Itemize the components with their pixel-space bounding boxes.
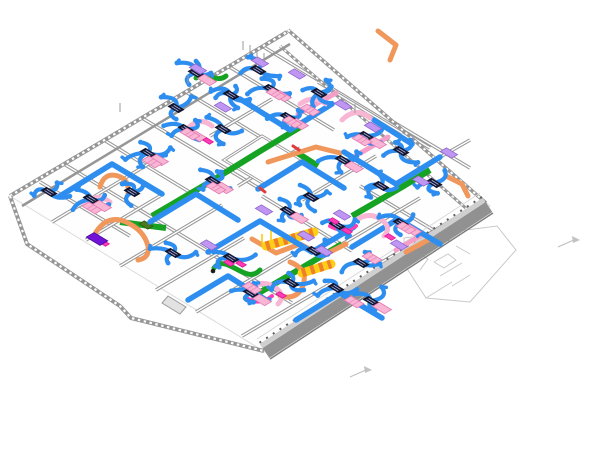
duct-elbow-stub: [199, 189, 204, 190]
duct-elbow-tip: [300, 88, 305, 93]
duct-elbow-stub: [234, 108, 238, 110]
duct-elbow-stub: [346, 235, 349, 238]
section-marker-icon: [572, 236, 580, 243]
duct-elbow-tip: [381, 153, 386, 158]
duct-elbow-tip: [408, 138, 413, 143]
duct-elbow-tip: [187, 82, 192, 87]
duct-elbow-tip: [253, 252, 258, 257]
duct-elbow-stub: [57, 183, 62, 184]
duct-elbow-tip: [194, 59, 199, 64]
duct-elbow-stub: [325, 240, 330, 241]
duct-elbow-stub: [414, 185, 417, 188]
duct-elbow-tip: [339, 270, 344, 275]
duct-elbow-stub: [357, 289, 358, 292]
duct-elbow-stub: [415, 162, 418, 165]
duct-elbow-stub: [379, 214, 380, 217]
duct-elbow-tip: [265, 116, 270, 121]
duct-elbow-tip: [163, 153, 168, 158]
duct-elbow-tip: [277, 197, 282, 202]
duct-elbow-stub: [268, 287, 271, 289]
duct-elbow-tip: [229, 289, 234, 294]
duct-elbow-stub: [213, 249, 214, 252]
duct-elbow-stub: [292, 252, 295, 255]
duct-elbow-stub: [282, 127, 287, 128]
duct-elbow-stub: [357, 152, 361, 154]
flex-duct-cluster[interactable]: [175, 59, 217, 87]
duct-elbow-stub: [168, 134, 172, 136]
duct-elbow-tip: [161, 123, 166, 128]
duct-elbow-stub: [366, 197, 371, 198]
duct-elbow-stub: [298, 110, 302, 111]
duct-elbow-stub: [295, 204, 300, 205]
duct-elbow-stub: [314, 294, 318, 296]
duct-elbow-tip: [102, 193, 107, 198]
duct-elbow-stub: [380, 264, 381, 267]
duct-elbow-stub: [336, 172, 341, 173]
duct-elbow-tip: [323, 279, 328, 284]
duct-elbow-tip: [233, 84, 238, 89]
duct-elbow-tip: [71, 207, 76, 212]
duct-elbow-tip: [312, 209, 317, 214]
duct-elbow-tip: [398, 232, 403, 237]
duct-elbow-tip: [298, 183, 303, 188]
duct-elbow-tip: [442, 168, 447, 173]
duct-elbow-tip: [138, 140, 143, 145]
isometric-3d-model-view[interactable]: [0, 0, 600, 471]
duct-elbow-stub: [211, 73, 212, 76]
duct-elbow-stub: [327, 191, 331, 193]
duct-elbow-stub: [215, 266, 220, 267]
duct-elbow-tip: [364, 185, 369, 190]
duct-elbow-tip: [320, 220, 325, 225]
duct-elbow-tip: [129, 203, 134, 208]
duct-elbow-stub: [279, 76, 280, 79]
duct-elbow-tip: [329, 84, 334, 89]
duct-elbow-stub: [122, 182, 125, 185]
duct-elbow-stub: [207, 115, 210, 118]
duct-elbow-stub: [262, 76, 266, 78]
duct-elbow-tip: [239, 129, 244, 134]
section-marker-icon: [364, 366, 372, 373]
duct-elbow-stub: [345, 134, 347, 137]
model-viewport[interactable]: [0, 0, 600, 471]
duct-elbow-stub: [161, 95, 164, 98]
duct-elbow-stub: [314, 281, 316, 284]
duct-elbow-tip: [301, 288, 306, 293]
round-device-dot: [211, 269, 216, 274]
duct-elbow-stub: [219, 144, 224, 145]
duct-elbow-stub: [170, 148, 173, 151]
duct-elbow-tip: [316, 159, 321, 164]
duct-elbow-tip: [174, 117, 179, 122]
duct-elbow-stub: [122, 157, 125, 159]
duct-elbow-stub: [249, 302, 254, 303]
duct-elbow-stub: [143, 184, 147, 185]
duct-elbow-stub: [329, 103, 332, 106]
duct-elbow-tip: [213, 95, 218, 100]
duct-elbow-stub: [76, 187, 79, 190]
duct-elbow-tip: [286, 271, 291, 276]
duct-elbow-tip: [238, 71, 243, 76]
duct-elbow-tip: [166, 261, 171, 266]
duct-elbow-stub: [355, 219, 358, 221]
duct-elbow-stub: [31, 193, 34, 196]
duct-elbow-stub: [433, 193, 437, 194]
duct-elbow-stub: [371, 310, 375, 312]
duct-elbow-stub: [248, 55, 252, 57]
duct-elbow-stub: [395, 140, 399, 142]
duct-elbow-stub: [196, 252, 198, 255]
duct-elbow-stub: [195, 120, 200, 121]
duct-elbow-tip: [198, 167, 203, 172]
duct-elbow-tip: [381, 123, 386, 128]
duct-elbow-tip: [245, 92, 250, 97]
duct-elbow-tip: [411, 212, 416, 217]
duct-elbow-tip: [164, 240, 169, 245]
duct-elbow-stub: [177, 60, 179, 63]
orange-pipe-run[interactable]: [378, 31, 396, 60]
duct-elbow-stub: [191, 97, 196, 98]
duct-elbow-tip: [394, 185, 399, 190]
duct-elbow-stub: [377, 171, 381, 172]
duct-elbow-tip: [68, 194, 73, 199]
